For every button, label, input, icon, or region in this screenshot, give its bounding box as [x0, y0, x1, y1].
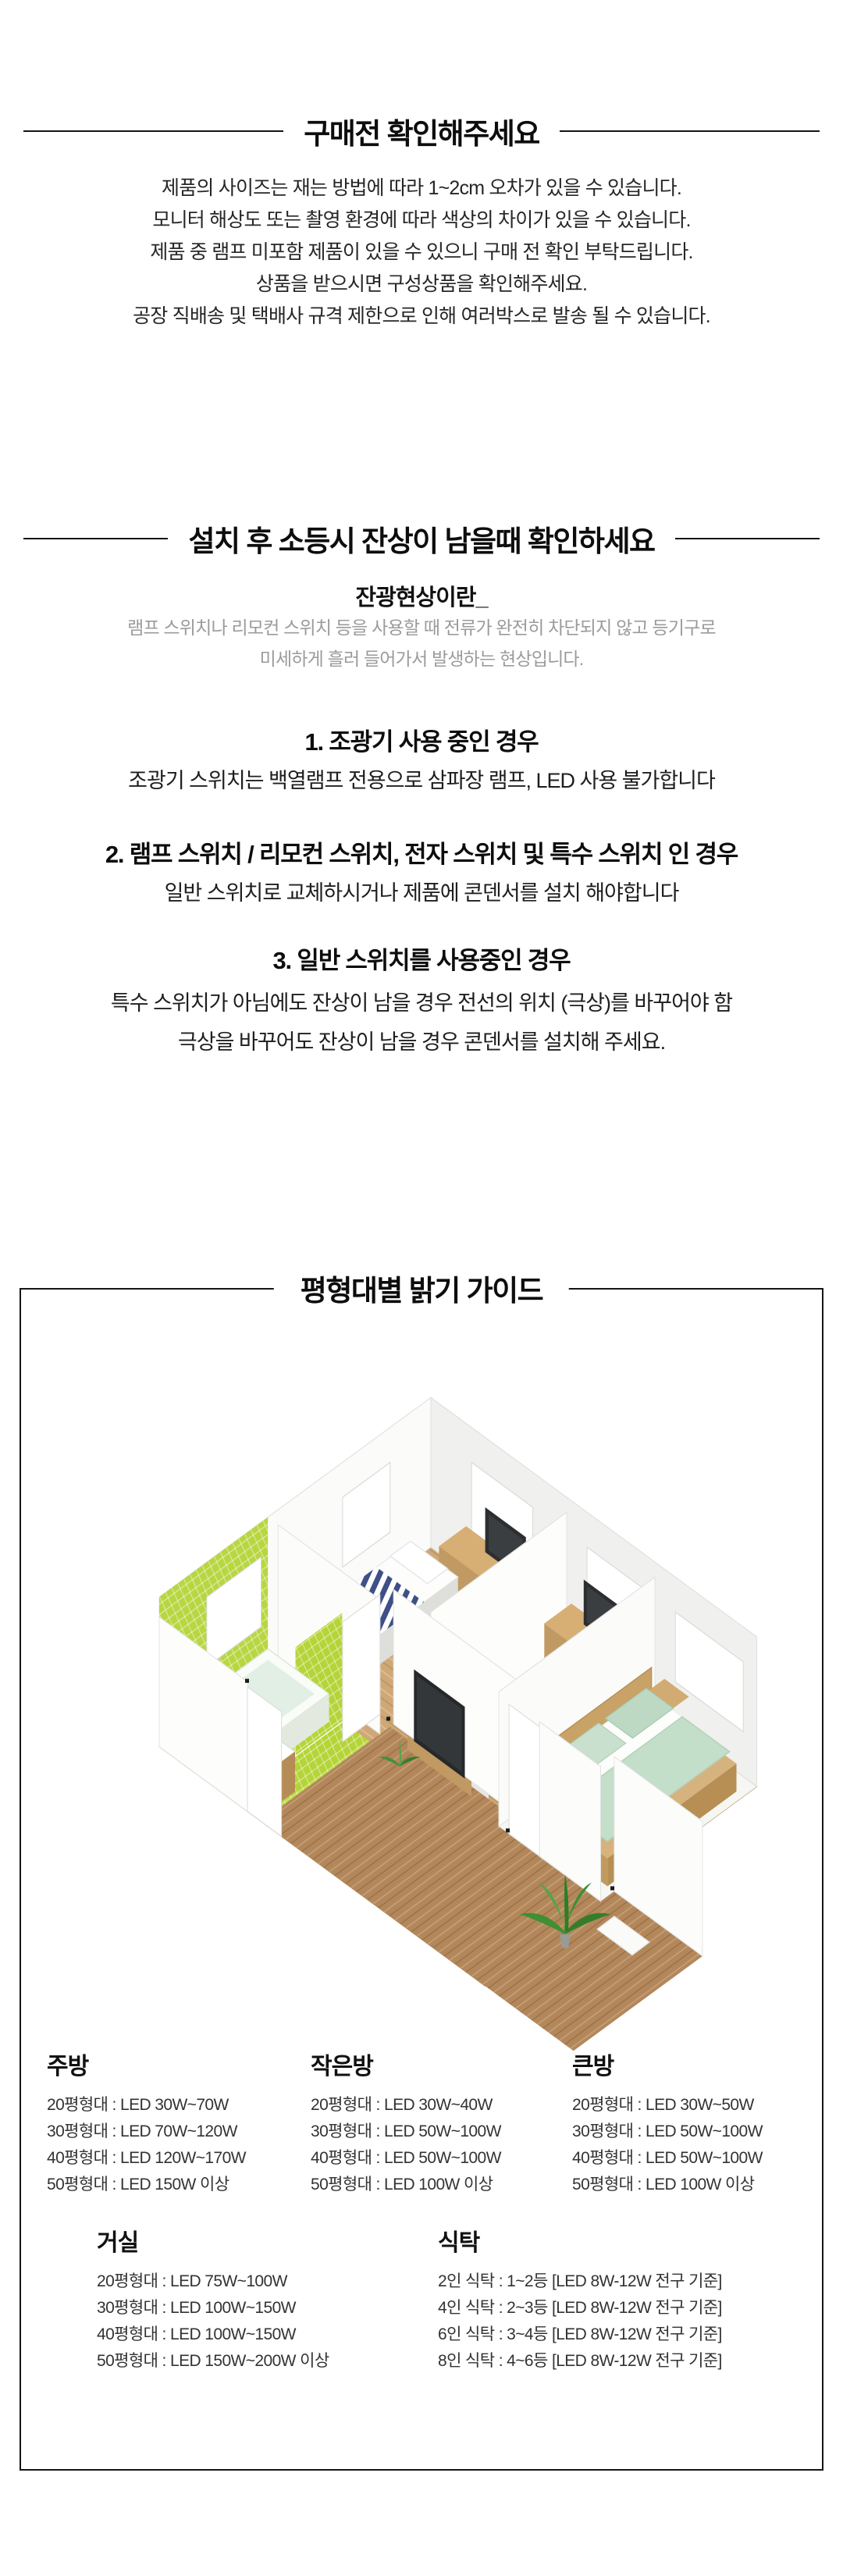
- guide-column-kitchen: 주방 20평형대 : LED 30W~70W 30평형대 : LED 70W~1…: [47, 2047, 246, 2198]
- guide-item: 40평형대 : LED 50W~100W: [311, 2145, 501, 2172]
- guide-item: 40평형대 : LED 100W~150W: [97, 2322, 329, 2348]
- afterglow-subtitle-row: 잔광현상이란_: [0, 579, 843, 612]
- case-2-line: 일반 스위치로 교체하시거나 제품에 콘덴서를 설치 해야합니다: [0, 873, 843, 913]
- room-name: 큰방: [572, 2047, 763, 2081]
- guide-item: 2인 식탁 : 1~2등 [LED 8W-12W 전구 기준]: [438, 2268, 722, 2295]
- guide-item: 6인 식탁 : 3~4등 [LED 8W-12W 전구 기준]: [438, 2322, 722, 2348]
- guide-item: 50평형대 : LED 150W 이상: [47, 2172, 246, 2198]
- afterglow-desc-line: 미세하게 흘러 들어가서 발생하는 현상입니다.: [0, 643, 843, 674]
- guide-item: 4인 식탁 : 2~3등 [LED 8W-12W 전구 기준]: [438, 2295, 722, 2322]
- guide-column-big-room: 큰방 20평형대 : LED 30W~50W 30평형대 : LED 50W~1…: [572, 2047, 763, 2198]
- afterglow-title-row: 설치 후 소등시 잔상이 남을때 확인하세요: [23, 517, 820, 560]
- case-3-line: 특수 스위치가 아님에도 잔상이 남을 경우 전선의 위치 (극상)를 바꾸어야…: [0, 984, 843, 1023]
- open-door: [509, 1704, 543, 1859]
- guide-item: 30평형대 : LED 50W~100W: [311, 2119, 501, 2145]
- case-3-line: 극상을 바꾸어도 잔상이 남을 경우 콘덴서를 설치해 주세요.: [0, 1023, 843, 1062]
- case-3-body: 특수 스위치가 아님에도 잔상이 남을 경우 전선의 위치 (극상)를 바꾸어야…: [0, 984, 843, 1062]
- guide-item: 50평형대 : LED 100W 이상: [572, 2172, 763, 2198]
- room-name: 주방: [47, 2047, 246, 2081]
- guide-item: 30평형대 : LED 70W~120W: [47, 2119, 246, 2145]
- guide-column-small-room: 작은방 20평형대 : LED 30W~40W 30평형대 : LED 50W~…: [311, 2047, 501, 2198]
- notice-line: 제품의 사이즈는 재는 방법에 따라 1~2cm 오차가 있을 수 있습니다.: [0, 173, 843, 205]
- guide-item: 20평형대 : LED 30W~70W: [47, 2092, 246, 2119]
- notice-line: 모니터 해상도 또는 촬영 환경에 따라 색상의 차이가 있을 수 있습니다.: [0, 205, 843, 237]
- divider-line-right: [675, 538, 820, 539]
- guide-item: 20평형대 : LED 30W~40W: [311, 2092, 501, 2119]
- room-name: 거실: [97, 2223, 329, 2258]
- pre-purchase-notices: 제품의 사이즈는 재는 방법에 따라 1~2cm 오차가 있을 수 있습니다. …: [0, 173, 843, 333]
- guide-item: 30평형대 : LED 100W~150W: [97, 2295, 329, 2322]
- case-1-body: 조광기 스위치는 백열램프 전용으로 삼파장 램프, LED 사용 불가합니다: [0, 761, 843, 800]
- brightness-guide-box: 주방 20평형대 : LED 30W~70W 30평형대 : LED 70W~1…: [20, 1288, 823, 2471]
- case-2-body: 일반 스위치로 교체하시거나 제품에 콘덴서를 설치 해야합니다: [0, 873, 843, 913]
- product-detail-page: 구매전 확인해주세요 제품의 사이즈는 재는 방법에 따라 1~2cm 오차가 …: [0, 0, 843, 2576]
- case-3-heading-row: 3. 일반 스위치를 사용중인 경우: [0, 941, 843, 976]
- divider-line-left: [23, 538, 168, 539]
- guide-item: 50평형대 : LED 100W 이상: [311, 2172, 501, 2198]
- afterglow-description: 램프 스위치나 리모컨 스위치 등을 사용할 때 전류가 완전히 차단되지 않고…: [0, 612, 843, 674]
- case-1-heading: 1. 조광기 사용 중인 경우: [0, 722, 843, 757]
- case-1-heading-row: 1. 조광기 사용 중인 경우: [0, 722, 843, 757]
- notice-line: 제품 중 램프 미포함 제품이 있을 수 있으니 구매 전 확인 부탁드립니다.: [0, 237, 843, 269]
- divider-line-left: [23, 130, 283, 132]
- case-1-line: 조광기 스위치는 백열램프 전용으로 삼파장 램프, LED 사용 불가합니다: [0, 761, 843, 800]
- guide-item: 40평형대 : LED 50W~100W: [572, 2145, 763, 2172]
- notice-line: 상품을 받으시면 구성상품을 확인해주세요.: [0, 269, 843, 301]
- open-door: [247, 1687, 282, 1837]
- guide-item: 40평형대 : LED 120W~170W: [47, 2145, 246, 2172]
- guide-item: 50평형대 : LED 150W~200W 이상: [97, 2348, 329, 2375]
- guide-column-dining-table: 식탁 2인 식탁 : 1~2등 [LED 8W-12W 전구 기준] 4인 식탁…: [438, 2223, 722, 2375]
- notice-line: 공장 직배송 및 택배사 규격 제한으로 인해 여러박스로 발송 될 수 있습니…: [0, 301, 843, 333]
- afterglow-subtitle: 잔광현상이란_: [0, 579, 843, 612]
- guide-item: 30평형대 : LED 50W~100W: [572, 2119, 763, 2145]
- guide-column-living-room: 거실 20평형대 : LED 75W~100W 30평형대 : LED 100W…: [97, 2223, 329, 2375]
- case-3-heading: 3. 일반 스위치를 사용중인 경우: [0, 941, 843, 976]
- divider-line-right: [560, 130, 820, 132]
- brightness-guide-title: 평형대별 밝기 가이드: [274, 1267, 569, 1309]
- case-2-heading-row: 2. 램프 스위치 / 리모컨 스위치, 전자 스위치 및 특수 스위치 인 경…: [0, 834, 843, 870]
- afterglow-title: 설치 후 소등시 잔상이 남을때 확인하세요: [188, 518, 654, 560]
- room-name: 식탁: [438, 2223, 722, 2258]
- afterglow-desc-line: 램프 스위치나 리모컨 스위치 등을 사용할 때 전류가 완전히 차단되지 않고…: [0, 612, 843, 643]
- guide-item: 20평형대 : LED 30W~50W: [572, 2092, 763, 2119]
- guide-item: 20평형대 : LED 75W~100W: [97, 2268, 329, 2295]
- pre-purchase-title: 구매전 확인해주세요: [304, 110, 539, 152]
- guide-item: 8인 식탁 : 4~6등 [LED 8W-12W 전구 기준]: [438, 2348, 722, 2375]
- case-2-heading: 2. 램프 스위치 / 리모컨 스위치, 전자 스위치 및 특수 스위치 인 경…: [0, 834, 843, 870]
- pre-purchase-title-row: 구매전 확인해주세요: [23, 109, 820, 153]
- room-name: 작은방: [311, 2047, 501, 2081]
